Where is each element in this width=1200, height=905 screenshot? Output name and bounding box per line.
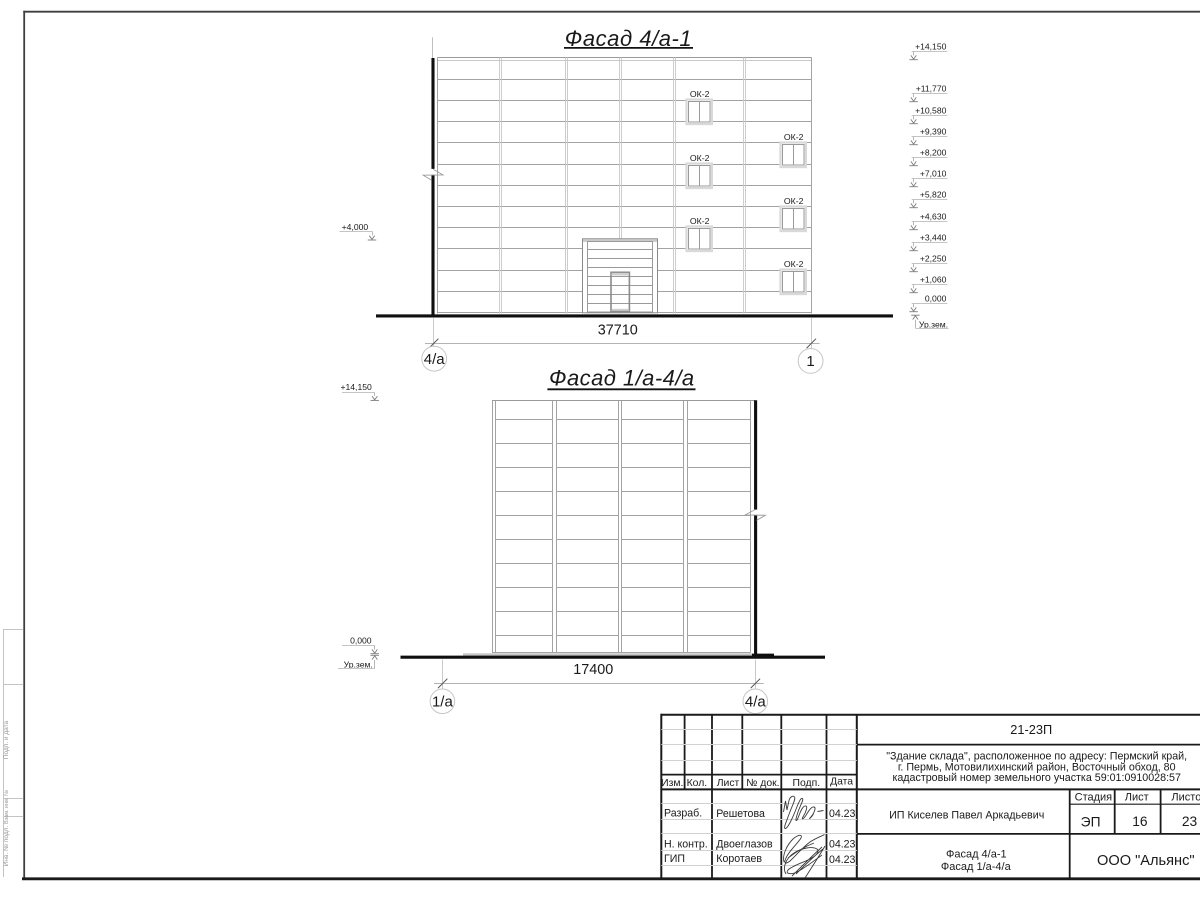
svg-text:+9,390: +9,390 [920, 127, 947, 137]
svg-text:4/а: 4/а [745, 693, 767, 710]
svg-text:04.23: 04.23 [829, 854, 856, 866]
svg-text:0,000: 0,000 [925, 294, 947, 304]
svg-text:ОК-2: ОК-2 [784, 196, 804, 206]
svg-text:+8,200: +8,200 [920, 148, 947, 158]
svg-text:Фасад 1/а-4/а: Фасад 1/а-4/а [549, 365, 695, 390]
svg-text:Двоеглазов: Двоеглазов [716, 838, 773, 850]
svg-text:кадастровый номер земельного у: кадастровый номер земельного участка 59:… [892, 772, 1181, 784]
svg-text:+2,250: +2,250 [920, 254, 947, 264]
svg-text:ОК-2: ОК-2 [690, 89, 710, 99]
svg-text:37710: 37710 [598, 322, 638, 338]
svg-text:16: 16 [1132, 814, 1148, 829]
svg-text:+7,010: +7,010 [920, 169, 947, 179]
svg-text:ИП Киселев Павел Аркадьевич: ИП Киселев Павел Аркадьевич [889, 809, 1044, 821]
svg-text:ОК-2: ОК-2 [784, 132, 804, 142]
svg-text:Ур.зем.: Ур.зем. [919, 319, 948, 329]
svg-text:Разраб.: Разраб. [664, 807, 702, 819]
svg-text:Н. контр.: Н. контр. [664, 839, 708, 851]
svg-text:Лист: Лист [717, 778, 740, 789]
svg-text:0,000: 0,000 [350, 635, 372, 645]
svg-text:Подп. и дата: Подп. и дата [3, 720, 10, 759]
svg-text:№ док.: № док. [746, 778, 779, 789]
svg-text:Фасад 4/а-1: Фасад 4/а-1 [946, 848, 1007, 860]
svg-text:Кол.: Кол. [687, 778, 708, 789]
svg-text:ОК-2: ОК-2 [690, 216, 710, 226]
svg-text:+10,580: +10,580 [915, 106, 947, 116]
svg-text:Лист: Лист [1125, 791, 1149, 803]
svg-text:Ур.зем.: Ур.зем. [344, 659, 373, 669]
svg-text:+4,000: +4,000 [342, 222, 369, 232]
svg-text:ООО "Альянс": ООО "Альянс" [1097, 853, 1195, 869]
svg-text:Взам. инв. №: Взам. инв. № [4, 790, 10, 824]
svg-text:+4,630: +4,630 [920, 212, 947, 222]
svg-text:ОК-2: ОК-2 [784, 259, 804, 269]
svg-text:4/а: 4/а [424, 351, 446, 368]
svg-text:+14,150: +14,150 [340, 382, 372, 392]
svg-text:ЭП: ЭП [1081, 814, 1101, 829]
svg-text:ГИП: ГИП [664, 853, 685, 865]
svg-text:Фасад 1/а-4/а: Фасад 1/а-4/а [941, 861, 1012, 873]
svg-text:Коротаев: Коротаев [716, 853, 762, 865]
svg-text:+11,770: +11,770 [916, 84, 947, 94]
svg-text:04.23: 04.23 [829, 839, 856, 851]
svg-text:Листов: Листов [1171, 791, 1200, 803]
svg-text:23: 23 [1182, 814, 1198, 829]
svg-text:Решетова: Решетова [716, 808, 765, 820]
svg-text:Подп.: Подп. [792, 778, 820, 789]
svg-text:Дата: Дата [830, 777, 853, 788]
svg-text:+14,150: +14,150 [915, 42, 947, 52]
svg-text:Изм.: Изм. [661, 778, 683, 789]
svg-text:+1,060: +1,060 [920, 275, 947, 285]
svg-text:Инв. № подл.: Инв. № подл. [3, 826, 10, 867]
svg-text:1: 1 [806, 353, 814, 370]
svg-text:+3,440: +3,440 [920, 233, 947, 243]
svg-text:17400: 17400 [573, 662, 613, 678]
svg-text:21-23П: 21-23П [1010, 722, 1052, 737]
svg-text:1/а: 1/а [432, 693, 454, 710]
svg-text:+5,820: +5,820 [920, 190, 947, 200]
svg-text:04.23: 04.23 [829, 808, 856, 820]
svg-text:ОК-2: ОК-2 [690, 153, 710, 163]
svg-text:Стадия: Стадия [1075, 791, 1113, 803]
